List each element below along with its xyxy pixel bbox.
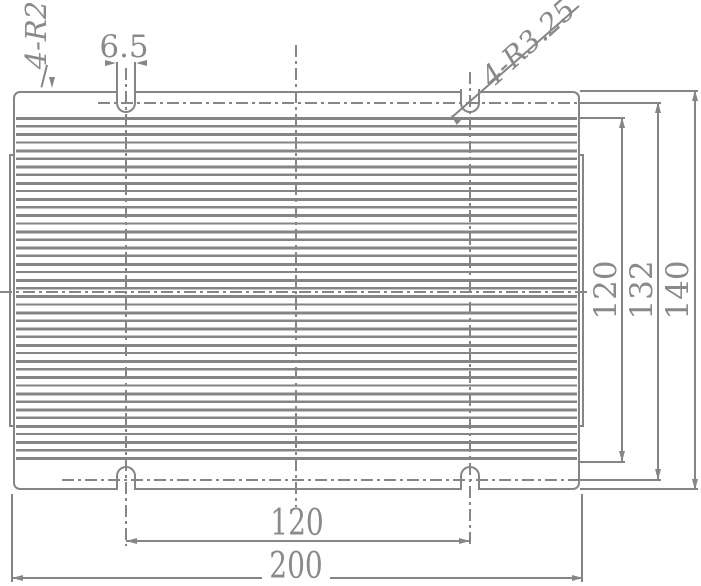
extension-line	[11, 494, 13, 582]
centerline-slot-left	[125, 68, 127, 546]
dimension-text-slot-pitch-vertical: 132	[625, 250, 659, 330]
dimension-text-overall-width: 200	[257, 549, 335, 585]
extension-line	[580, 479, 661, 481]
dimension-line-overall-width	[12, 577, 262, 579]
label-slot-width-text: 6.5	[99, 29, 148, 65]
centerline-slot-row-bottom	[62, 479, 602, 481]
dimension-text-fin-zone-height: 120	[589, 250, 623, 330]
centerline-horizontal-middle	[0, 291, 588, 293]
arrowhead	[655, 102, 661, 113]
label-slot-radius: 4-R3.25	[467, 0, 588, 100]
dimension-value: 120	[588, 260, 624, 319]
extension-line	[578, 461, 625, 463]
extension-line	[581, 494, 583, 582]
label-corner-radius-text: 4-R2	[19, 1, 53, 70]
dimension-text-overall-height: 140	[661, 250, 695, 330]
extension-line	[116, 62, 118, 90]
centerline-vertical-middle	[295, 45, 297, 507]
dimension-line-overall-width	[330, 577, 583, 579]
centerline-slot-right	[469, 72, 471, 546]
extension-line	[580, 488, 698, 490]
dimension-value: 132	[624, 260, 660, 319]
extension-line	[134, 62, 136, 90]
arrowhead	[692, 479, 698, 490]
extension-line	[580, 102, 661, 104]
arrowhead	[655, 469, 661, 480]
arrowhead	[459, 538, 470, 544]
arrowhead	[619, 451, 625, 462]
arrowhead	[126, 538, 137, 544]
arrowhead	[12, 575, 23, 581]
dimension-value: 200	[269, 546, 323, 586]
arrowhead	[619, 117, 625, 128]
label-corner-radius: 4-R2	[21, 0, 51, 83]
dimension-text-slot-pitch-horizontal: 120	[258, 506, 336, 542]
dimension-value: 120	[270, 503, 324, 544]
arrowhead	[572, 575, 583, 581]
extension-line	[580, 90, 698, 92]
engineering-drawing-canvas: 4-R2 6.5 4-R3.25 120 132 140 120 200	[0, 0, 701, 586]
dimension-value: 140	[660, 260, 696, 319]
centerline-slot-row-top	[98, 102, 600, 104]
arrowhead	[692, 90, 698, 101]
label-slot-width: 6.5	[84, 31, 164, 63]
label-slot-radius-text: 4-R3.25	[474, 0, 582, 94]
